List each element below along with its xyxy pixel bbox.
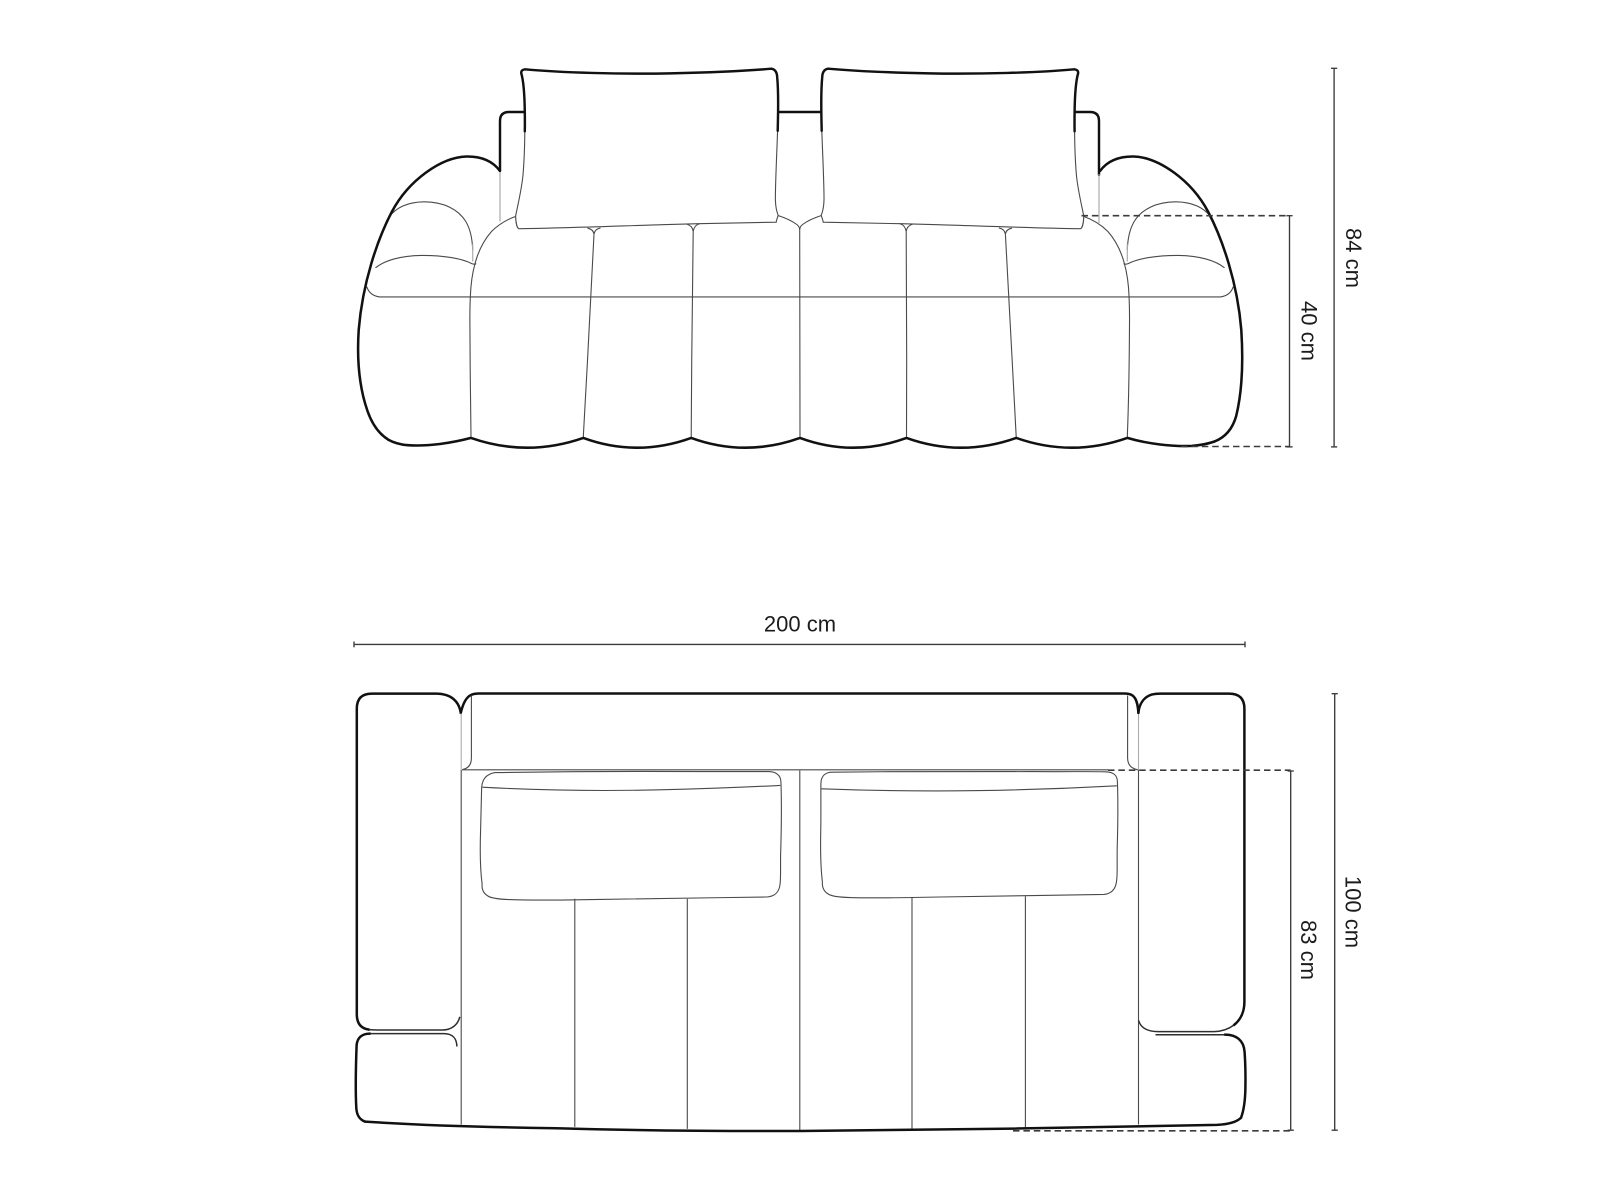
svg-text:40 cm: 40 cm	[1297, 301, 1322, 361]
svg-text:200 cm: 200 cm	[764, 611, 836, 636]
svg-text:83 cm: 83 cm	[1296, 920, 1321, 980]
svg-text:84 cm: 84 cm	[1341, 228, 1366, 288]
svg-text:100 cm: 100 cm	[1341, 876, 1366, 948]
